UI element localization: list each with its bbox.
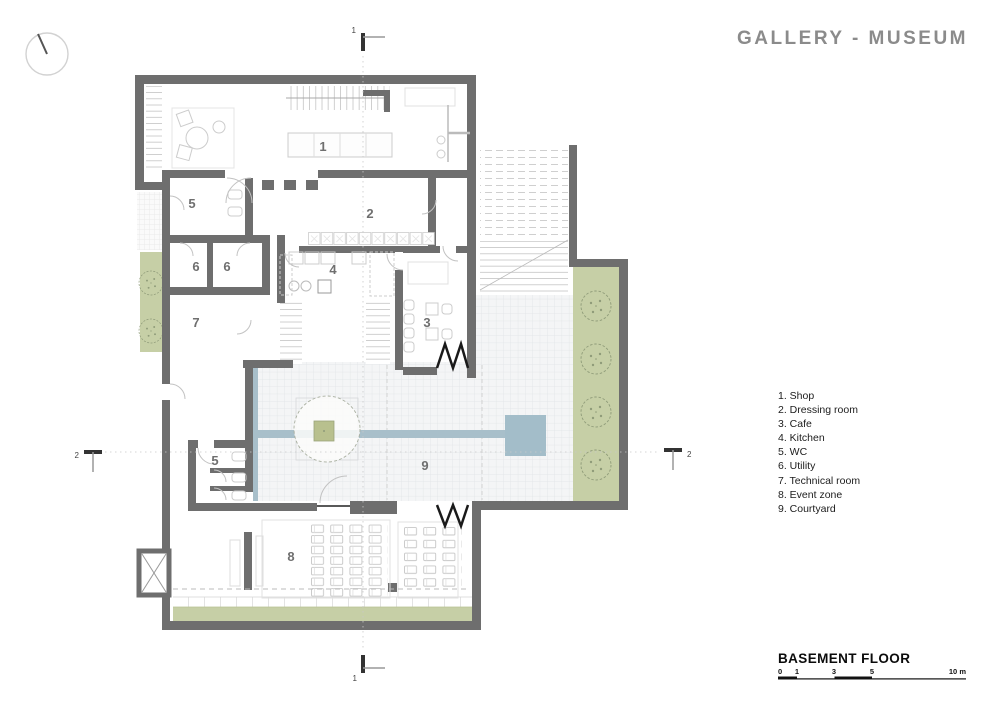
- chair-rows: [311, 524, 462, 598]
- room-label-wc-upper: 5: [188, 196, 195, 211]
- drawing-sheet: GALLERY - MUSEUM 1. Shop 2. Dressing roo…: [0, 0, 1000, 707]
- room-label-kitchen: 4: [329, 262, 337, 277]
- room-label-wc-lower: 5: [211, 453, 218, 468]
- room-label-technical-room: 7: [192, 315, 199, 330]
- interior-stairs: [137, 86, 390, 364]
- section-label-right: 2: [687, 450, 692, 459]
- section-label-top: 1: [352, 26, 357, 35]
- room-label-courtyard: 9: [421, 458, 428, 473]
- floor-plan: 1 1 2 2 1 2 3 4 5 5 6 6 7 8 9: [0, 0, 1000, 707]
- room-label-event-zone: 8: [287, 549, 294, 564]
- ramp-stairs: [480, 149, 568, 293]
- room-label-utility-right: 6: [223, 259, 230, 274]
- furniture: [172, 88, 470, 598]
- room-label-utility-left: 6: [192, 259, 199, 274]
- locker-row: [308, 232, 435, 245]
- elevator: [139, 551, 169, 595]
- room-label-dressing-room: 2: [366, 206, 373, 221]
- room-label-cafe: 3: [423, 315, 430, 330]
- section-label-left: 2: [75, 451, 80, 460]
- room-label-shop: 1: [319, 139, 326, 154]
- north-arrow-icon: [26, 33, 68, 75]
- section-label-bottom: 1: [353, 674, 358, 683]
